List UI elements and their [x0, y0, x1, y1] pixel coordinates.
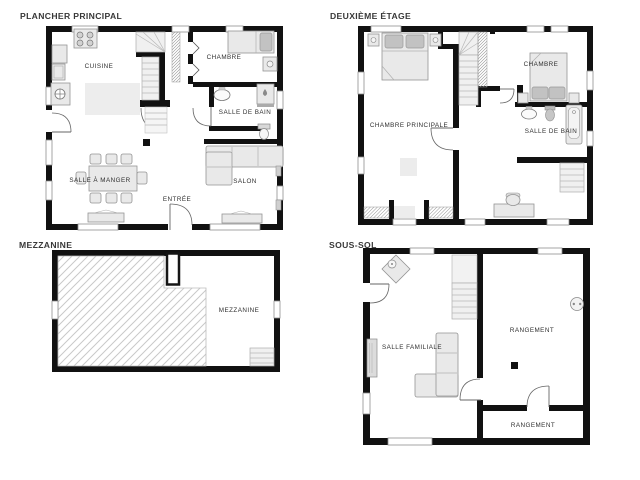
doorway-mat [394, 206, 415, 218]
closet [429, 207, 453, 218]
stair-railing [172, 32, 180, 82]
room-label-rangement-bas: RANGEMENT [511, 422, 555, 429]
pillow [406, 35, 424, 48]
electrical-outlet-icon [571, 298, 584, 311]
storage-room [571, 298, 584, 311]
pillow [532, 87, 548, 99]
room-label-cuisine: CUISINE [85, 63, 114, 70]
pillow [385, 35, 403, 48]
kitchen-floor-patch [85, 83, 140, 115]
closet [364, 207, 389, 218]
plan-title-mezzanine: MEZZANINE [19, 240, 72, 250]
chimney-stub [167, 254, 179, 285]
chair [121, 154, 132, 164]
shower-threshold [257, 104, 274, 107]
room-label-salle-de-bain: SALLE DE BAIN [525, 128, 577, 135]
room-label-mezzanine: MEZZANINE [219, 307, 259, 314]
nightstand [569, 93, 579, 103]
room-label-chambre-principale: CHAMBRE PRINCIPALE [370, 122, 448, 129]
stair-landing [452, 255, 477, 283]
lamp-icon [433, 38, 438, 43]
chair [121, 193, 132, 203]
pillow [549, 87, 565, 99]
stair-railing [478, 32, 487, 87]
chair [106, 193, 117, 203]
attic-stairs [560, 163, 584, 192]
chair [90, 154, 101, 164]
room-label-salle-de-bain: SALLE DE BAIN [219, 109, 271, 116]
staircase-basement [452, 255, 477, 319]
room-label-chambre: CHAMBRE [524, 61, 559, 68]
bathroom-sink [214, 90, 230, 101]
room-label-chambre: CHAMBRE [207, 54, 242, 61]
pillow [260, 33, 272, 51]
room-label-rangement-haut: RANGEMENT [510, 327, 554, 334]
sofa-chaise [206, 152, 232, 185]
burner-icon [87, 40, 93, 46]
lamp-icon [267, 61, 273, 67]
room-label-salle-a-manger: SALLE À MANGER [69, 175, 130, 184]
chair [90, 193, 101, 203]
room-label-salle-familiale: SALLE FAMILIALE [382, 344, 442, 351]
room-label-entree: ENTRÉE [163, 194, 191, 203]
desk [494, 204, 534, 217]
toilet [546, 109, 555, 121]
rug [400, 158, 417, 176]
floorplan-sheet: PLANCHER PRINCIPAL [0, 0, 640, 480]
sofa-chaise [436, 333, 458, 396]
plan-title-main: PLANCHER PRINCIPAL [20, 11, 122, 21]
burner-icon [77, 32, 83, 38]
column-post [143, 139, 150, 146]
room-label-salon: SALON [233, 178, 257, 185]
plan-title-second: DEUXIÈME ÉTAGE [330, 11, 411, 21]
wall-unit [276, 200, 281, 210]
chair [106, 154, 117, 164]
counter [52, 45, 67, 63]
staircase-mezzanine [250, 348, 274, 366]
chair [137, 172, 147, 184]
toilet [260, 129, 269, 140]
bathroom-sink [522, 109, 537, 119]
column-post [511, 362, 518, 369]
nightstand [518, 93, 528, 103]
media-console [222, 214, 262, 223]
desk-chair [506, 195, 520, 206]
sideboard [88, 213, 124, 222]
lamp-icon [371, 38, 376, 43]
wall-unit [276, 166, 281, 176]
burner-icon [77, 40, 83, 46]
burner-icon [87, 32, 93, 38]
